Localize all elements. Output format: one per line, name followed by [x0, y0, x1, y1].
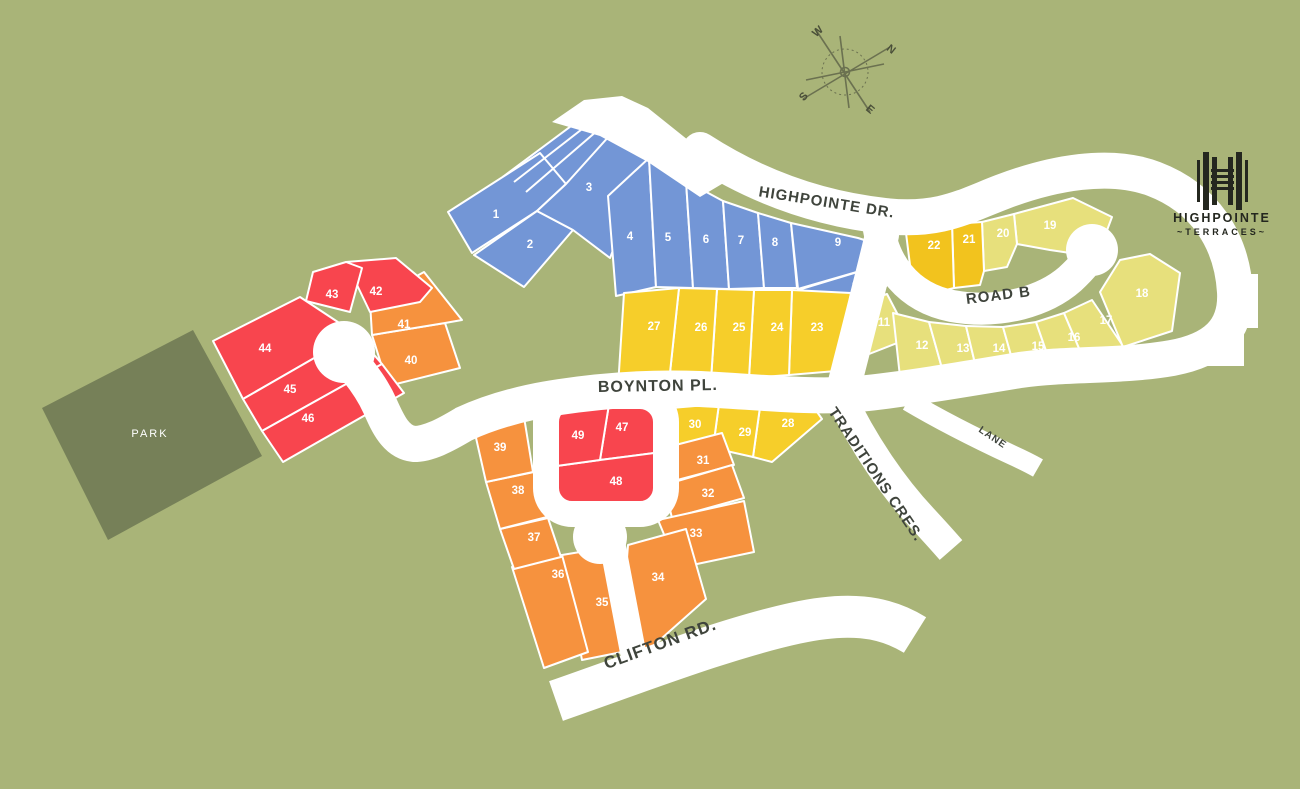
lot-38-label: 38 — [512, 485, 525, 497]
lot-36-label: 36 — [552, 569, 565, 581]
lot-18-label: 18 — [1136, 288, 1149, 300]
lot-6-label: 6 — [703, 234, 709, 246]
logo-h-bar — [1236, 152, 1242, 210]
logo-h-bar — [1197, 160, 1200, 202]
lot-35-label: 35 — [596, 597, 609, 609]
logo-h-crossbar — [1211, 187, 1234, 190]
lot-25-label: 25 — [733, 322, 746, 334]
logo-h-crossbar — [1211, 175, 1234, 178]
site-plan-map: 1234567891011121314151617181920212223242… — [0, 0, 1300, 789]
lot-23-label: 23 — [811, 322, 824, 334]
lot-14-label: 14 — [993, 343, 1006, 355]
logo-h-crossbar — [1211, 181, 1234, 184]
lot-10-label: 10 — [852, 281, 865, 293]
park-label: PARK — [131, 428, 168, 440]
lot-17-label: 17 — [1100, 315, 1113, 327]
lot-1-label: 1 — [493, 209, 500, 221]
lot-16-label: 16 — [1068, 332, 1081, 344]
lot-20-label: 20 — [997, 228, 1010, 240]
lot-45-label: 45 — [284, 384, 297, 396]
lot-25[interactable] — [711, 289, 754, 380]
lot-9-label: 9 — [835, 237, 841, 249]
lot-26-label: 26 — [695, 322, 708, 334]
lot-40-label: 40 — [405, 355, 418, 367]
cul-de-sac — [573, 510, 627, 564]
lot-21-label: 21 — [963, 234, 976, 246]
logo-subtitle: ~TERRACES~ — [1177, 227, 1267, 237]
road-label-boynton-pl: BOYNTON PL. — [598, 377, 718, 396]
lot-8-label: 8 — [772, 237, 779, 249]
lot-49-label: 49 — [572, 430, 585, 442]
road-stub — [1206, 332, 1244, 366]
lot-24[interactable] — [749, 290, 792, 378]
road-stub — [1222, 274, 1258, 328]
lot-37-label: 37 — [528, 532, 541, 544]
logo-h-bar — [1203, 152, 1209, 210]
lot-13-label: 13 — [957, 343, 970, 355]
lot-7-label: 7 — [738, 235, 744, 247]
logo-h-bar — [1245, 160, 1248, 202]
lot-33-label: 33 — [690, 528, 703, 540]
cul-de-sac — [313, 321, 375, 383]
lot-2-label: 2 — [527, 239, 533, 251]
lot-42-label: 42 — [370, 286, 383, 298]
lot-30-label: 30 — [689, 419, 702, 431]
cul-de-sac — [1066, 224, 1118, 276]
lot-31-label: 31 — [697, 455, 710, 467]
lot-28-label: 28 — [782, 418, 795, 430]
lot-4-label: 4 — [627, 231, 634, 243]
lot-15-label: 15 — [1032, 341, 1045, 353]
site-plan-page: 1234567891011121314151617181920212223242… — [0, 0, 1300, 789]
lot-11-label: 11 — [878, 317, 891, 329]
lot-47-label: 47 — [616, 422, 629, 434]
lot-19-label: 19 — [1044, 220, 1057, 232]
lot-22-label: 22 — [928, 240, 941, 252]
logo-h-crossbar — [1211, 169, 1234, 172]
lot-5-label: 5 — [665, 232, 672, 244]
lot-32-label: 32 — [702, 488, 715, 500]
lot-48-label: 48 — [610, 476, 623, 488]
lot-12-label: 12 — [916, 340, 929, 352]
lot-34-label: 34 — [652, 572, 665, 584]
lot-21[interactable] — [952, 222, 984, 288]
lot-29-label: 29 — [739, 427, 752, 439]
logo-title: HIGHPOINTE — [1173, 211, 1271, 225]
lot-3-label: 3 — [586, 182, 592, 194]
lot-44-label: 44 — [259, 343, 272, 355]
lot-46-label: 46 — [302, 413, 315, 425]
lot-43-label: 43 — [326, 289, 339, 301]
lot-41-label: 41 — [398, 319, 411, 331]
lot-39-label: 39 — [494, 442, 507, 454]
lot-24-label: 24 — [771, 322, 784, 334]
lot-27-label: 27 — [648, 321, 661, 333]
